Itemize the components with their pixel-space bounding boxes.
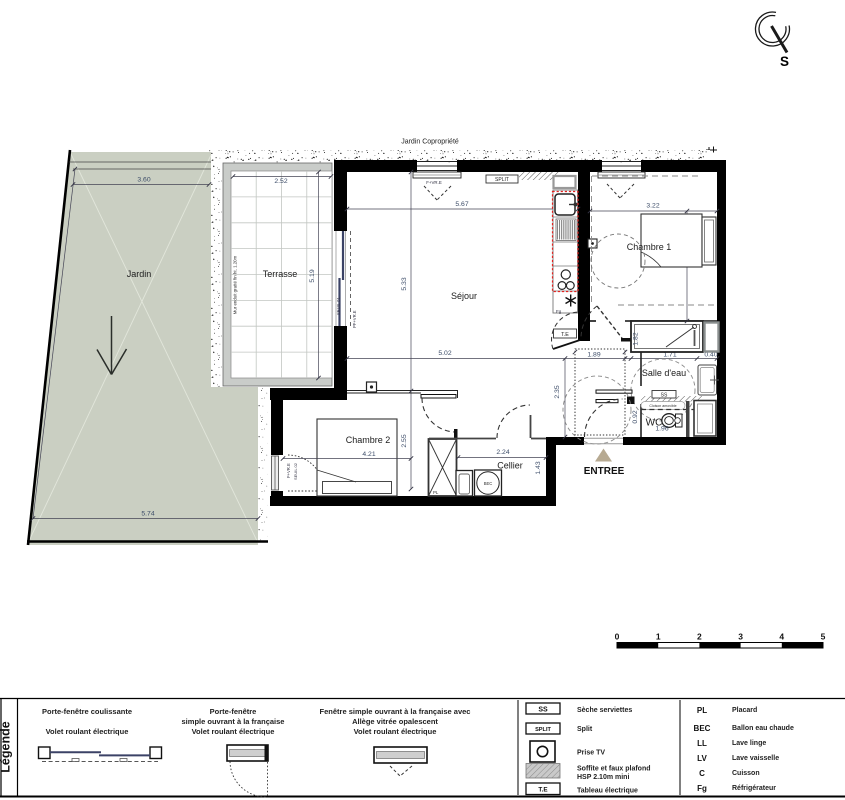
svg-text:ENTREE: ENTREE — [584, 466, 625, 477]
svg-text:simple ouvrant à la française: simple ouvrant à la française — [182, 717, 285, 726]
svg-text:Split: Split — [577, 726, 593, 733]
svg-text:3.60: 3.60 — [137, 177, 150, 184]
svg-text:5.67: 5.67 — [455, 201, 468, 208]
svg-text:Jardin: Jardin — [127, 269, 152, 279]
svg-text:Mur enduit gratté fin ht. 1.20: Mur enduit gratté fin ht. 1.20m — [233, 255, 238, 314]
svg-text:Cuisson: Cuisson — [732, 770, 760, 777]
svg-text:Allège vitrée opalescent: Allège vitrée opalescent — [352, 717, 438, 726]
svg-text:5.19: 5.19 — [309, 269, 316, 282]
svg-text:Chambre 2: Chambre 2 — [346, 435, 391, 445]
svg-text:Séjour: Séjour — [451, 291, 477, 301]
svg-text:Volet roulant électrique: Volet roulant électrique — [354, 727, 437, 736]
svg-text:3: 3 — [738, 632, 743, 642]
svg-text:SPLIT: SPLIT — [495, 177, 509, 183]
svg-text:0.92: 0.92 — [632, 410, 639, 423]
svg-text:SEUIL 01: SEUIL 01 — [336, 297, 341, 315]
svg-text:Salle d'eau: Salle d'eau — [642, 368, 686, 378]
svg-text:5.74: 5.74 — [141, 511, 154, 518]
svg-text:Prise TV: Prise TV — [577, 750, 605, 757]
svg-text:PF+VR.E: PF+VR.E — [352, 310, 357, 328]
svg-text:PL: PL — [433, 490, 439, 495]
svg-text:S: S — [780, 54, 789, 69]
svg-text:Légende: Légende — [0, 721, 13, 772]
svg-text:Lave linge: Lave linge — [732, 740, 766, 747]
svg-text:SS: SS — [538, 707, 548, 714]
svg-text:2: 2 — [697, 632, 702, 642]
svg-text:Fg: Fg — [697, 784, 707, 793]
svg-text:LV: LV — [697, 754, 707, 763]
svg-text:5.33: 5.33 — [401, 277, 408, 290]
svg-text:C: C — [699, 769, 705, 778]
svg-text:Placard: Placard — [732, 707, 757, 714]
svg-text:SPLIT: SPLIT — [535, 727, 551, 733]
svg-text:4: 4 — [779, 632, 784, 642]
svg-text:4.21: 4.21 — [362, 451, 375, 458]
svg-text:Terrasse: Terrasse — [263, 269, 298, 279]
svg-text:Volet roulant électrique: Volet roulant électrique — [46, 727, 129, 736]
svg-text:Jardin Copropriété: Jardin Copropriété — [401, 139, 459, 146]
svg-text:1.82: 1.82 — [633, 332, 640, 345]
svg-text:0: 0 — [615, 632, 620, 642]
svg-text:1: 1 — [656, 632, 661, 642]
svg-text:Fenêtre simple ouvrant à la fr: Fenêtre simple ouvrant à la française av… — [320, 707, 471, 716]
svg-text:2.52: 2.52 — [274, 178, 287, 185]
svg-text:Réfrigérateur: Réfrigérateur — [732, 785, 776, 792]
svg-text:Porte-fenêtre: Porte-fenêtre — [210, 707, 257, 716]
svg-text:3.22: 3.22 — [646, 203, 659, 210]
svg-text:1.43: 1.43 — [535, 461, 542, 474]
svg-text:F+VR.E: F+VR.E — [426, 180, 442, 185]
svg-text:Lave vaisselle: Lave vaisselle — [732, 755, 779, 762]
svg-text:HSP 2.10m mini: HSP 2.10m mini — [577, 774, 629, 781]
svg-text:Ballon eau chaude: Ballon eau chaude — [732, 725, 794, 732]
svg-text:SEUIL 02: SEUIL 02 — [293, 462, 298, 480]
svg-text:Sèche serviettes: Sèche serviettes — [577, 707, 632, 714]
svg-text:5.02: 5.02 — [438, 350, 451, 357]
svg-text:2.55: 2.55 — [401, 434, 408, 447]
svg-text:BEC: BEC — [694, 724, 711, 733]
svg-text:SS: SS — [661, 393, 668, 399]
svg-text:Cellier: Cellier — [497, 461, 523, 471]
svg-text:5: 5 — [821, 632, 826, 642]
svg-text:BEC: BEC — [484, 481, 493, 486]
svg-text:T.E: T.E — [561, 332, 569, 338]
svg-text:2.35: 2.35 — [554, 385, 561, 398]
svg-text:LL: LL — [697, 739, 707, 748]
svg-text:2.24: 2.24 — [496, 449, 509, 456]
svg-text:Soffite et faux plafond: Soffite et faux plafond — [577, 766, 651, 773]
svg-text:Porte-fenêtre coulissante: Porte-fenêtre coulissante — [42, 707, 132, 716]
svg-text:Chambre 1: Chambre 1 — [627, 242, 672, 252]
svg-text:PL: PL — [697, 706, 707, 715]
svg-text:F+VR.E: F+VR.E — [286, 463, 291, 478]
svg-text:T.E: T.E — [538, 787, 548, 794]
svg-text:Volet roulant électrique: Volet roulant électrique — [192, 727, 275, 736]
svg-text:Tableau électrique: Tableau électrique — [577, 788, 638, 795]
svg-text:1.89: 1.89 — [587, 352, 600, 359]
svg-text:Fg: Fg — [556, 309, 562, 314]
svg-text:Cloison amovible: Cloison amovible — [649, 404, 676, 408]
svg-text:1.96: 1.96 — [655, 426, 668, 433]
